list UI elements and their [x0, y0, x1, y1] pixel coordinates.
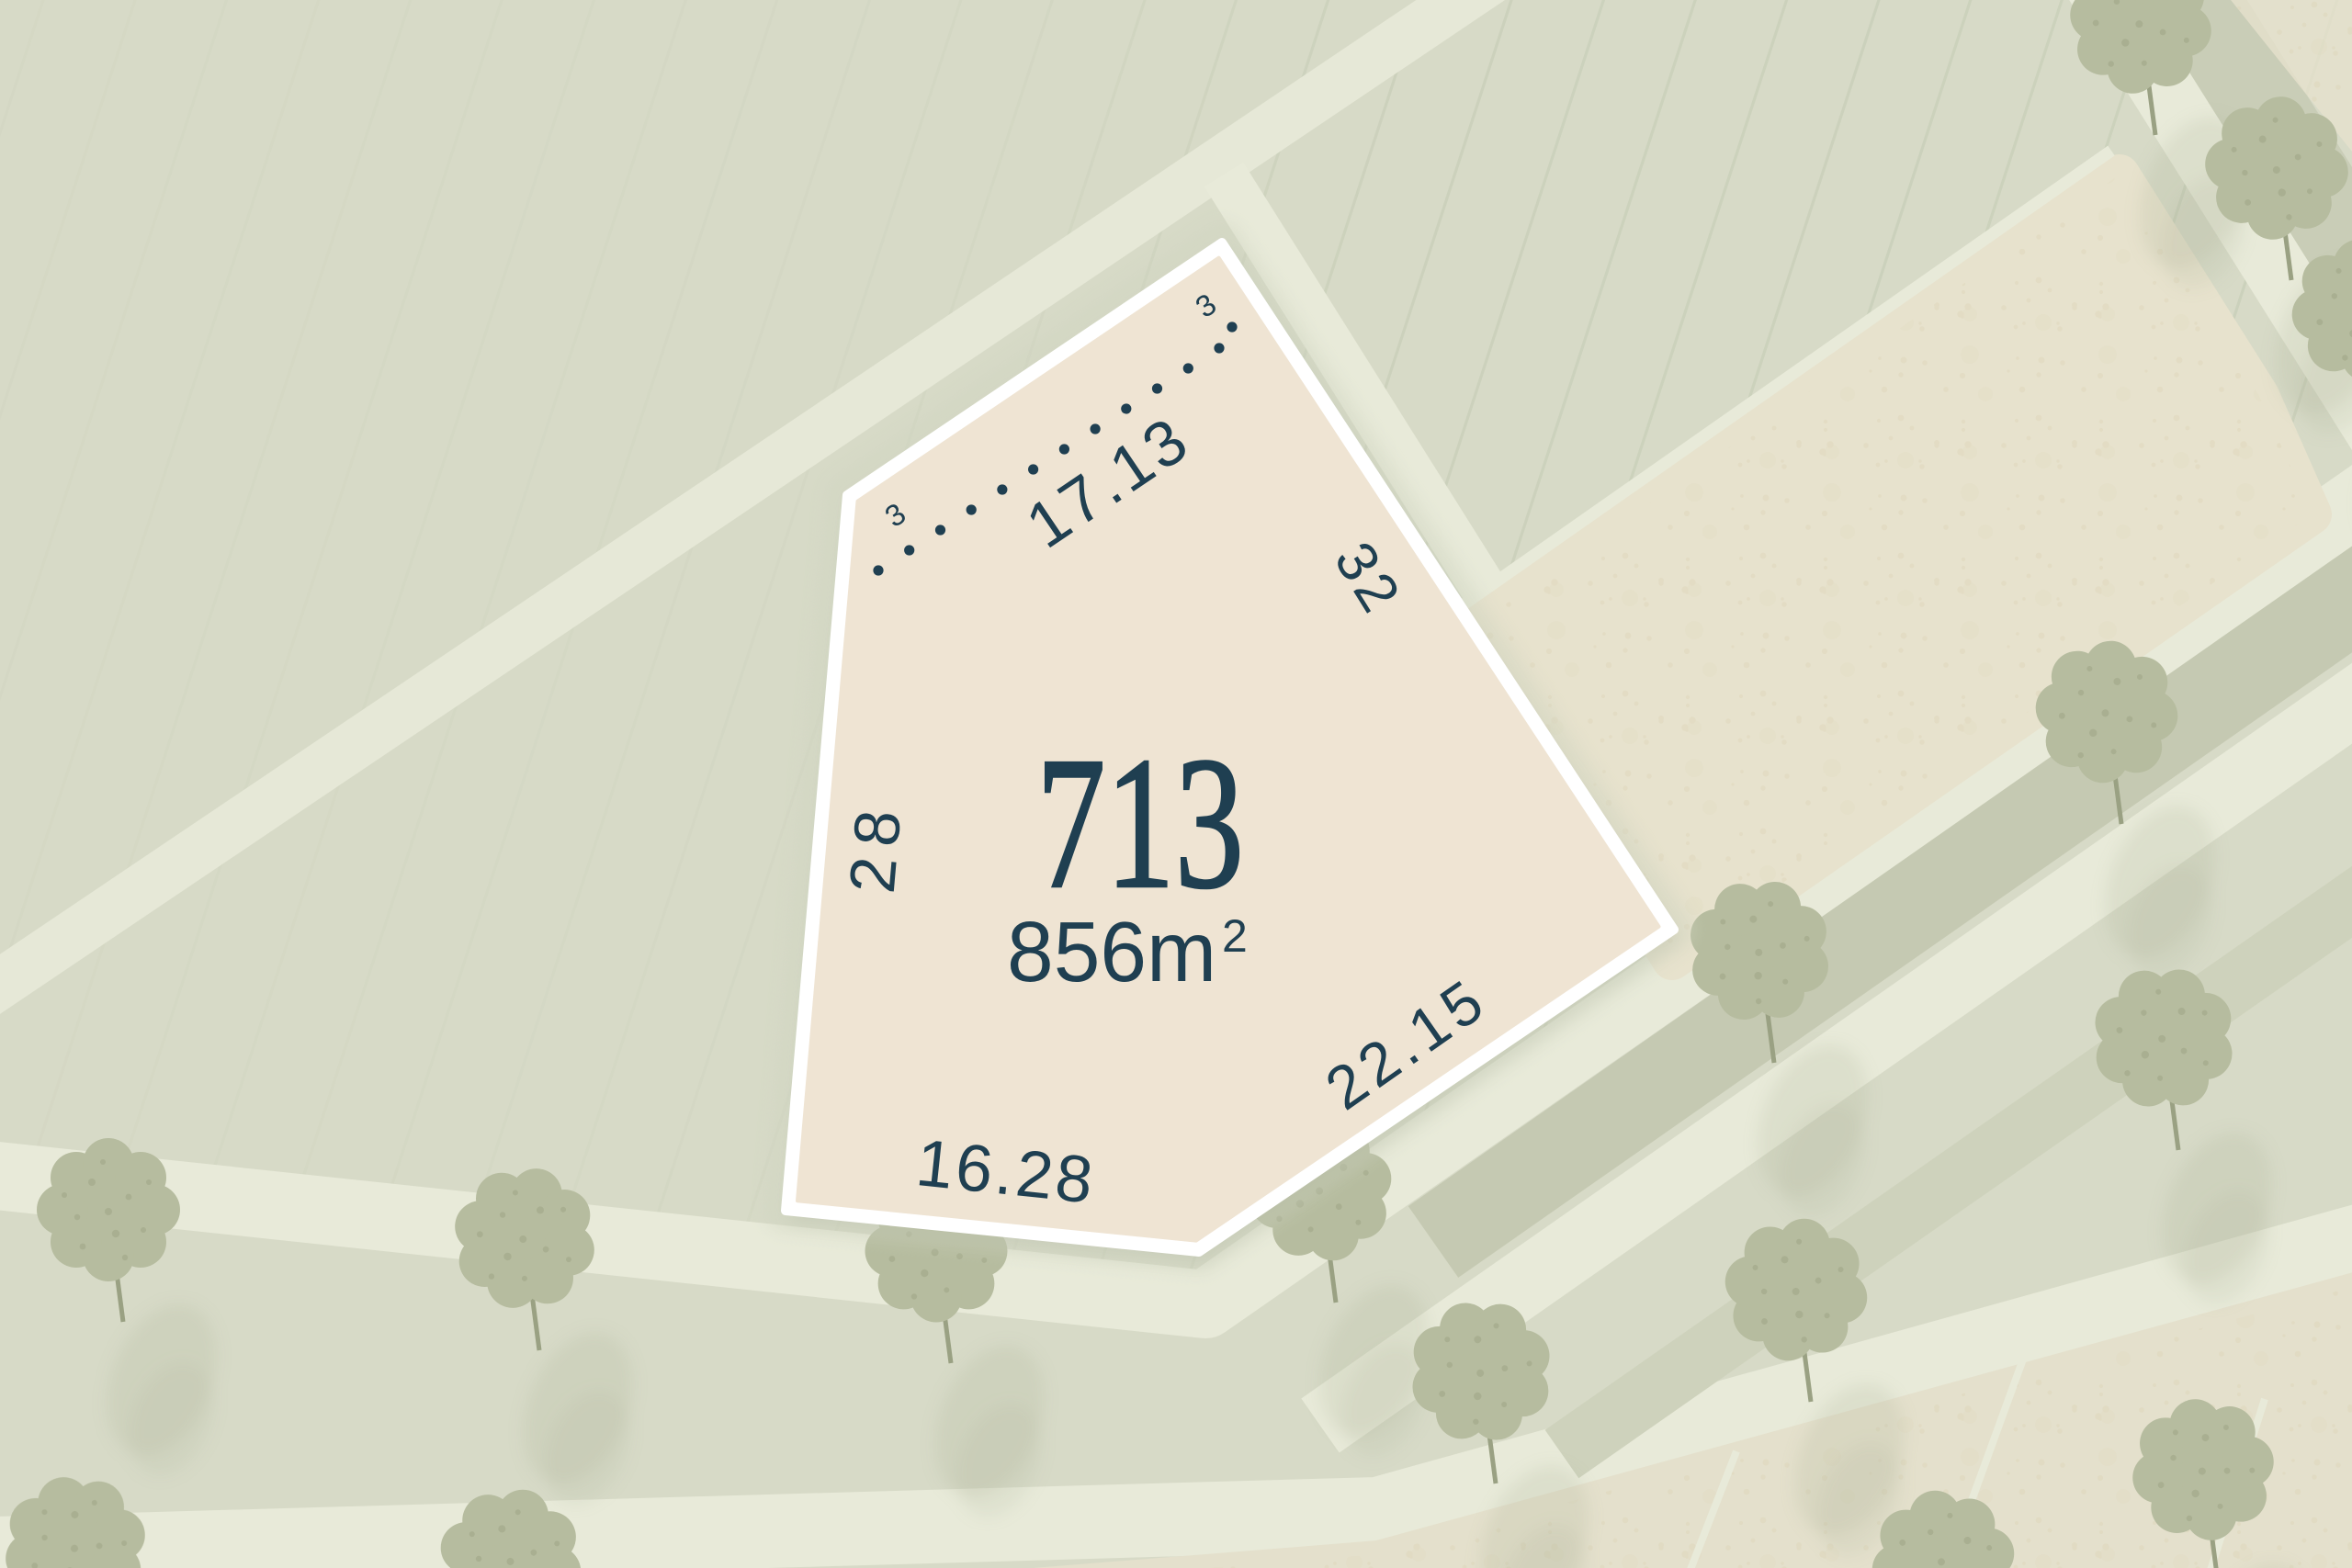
svg-text:2: 2 — [1222, 910, 1248, 962]
svg-text:713: 713 — [1036, 717, 1244, 928]
svg-text:856m: 856m — [1007, 904, 1216, 999]
svg-text:28: 28 — [836, 796, 916, 896]
